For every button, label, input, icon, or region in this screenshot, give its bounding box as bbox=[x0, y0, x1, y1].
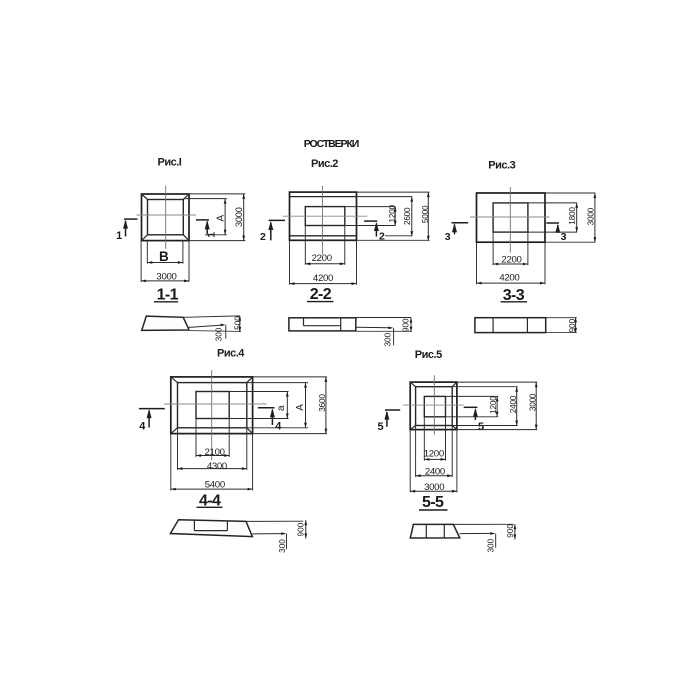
svg-text:1-1: 1-1 bbox=[157, 286, 179, 303]
svg-text:3000: 3000 bbox=[586, 207, 595, 225]
svg-text:3600: 3600 bbox=[318, 394, 327, 412]
svg-text:5-5: 5-5 bbox=[422, 494, 444, 511]
svg-text:4: 4 bbox=[275, 421, 282, 433]
svg-text:3000: 3000 bbox=[529, 393, 538, 411]
svg-text:РОСТВЕРКИ: РОСТВЕРКИ bbox=[304, 138, 359, 150]
svg-text:Рис.5: Рис.5 bbox=[415, 349, 442, 361]
svg-text:900: 900 bbox=[297, 522, 306, 536]
svg-text:900: 900 bbox=[506, 524, 515, 538]
svg-text:2400: 2400 bbox=[425, 466, 445, 477]
svg-text:3000: 3000 bbox=[424, 482, 444, 493]
svg-text:4200: 4200 bbox=[499, 272, 519, 283]
svg-text:4200: 4200 bbox=[313, 273, 333, 284]
svg-text:Рис.I: Рис.I bbox=[158, 156, 182, 168]
svg-text:В: В bbox=[159, 249, 169, 264]
svg-text:500: 500 bbox=[234, 316, 243, 330]
svg-text:3000: 3000 bbox=[156, 272, 176, 283]
svg-text:а: а bbox=[276, 405, 287, 411]
svg-text:300: 300 bbox=[215, 327, 224, 341]
svg-text:3: 3 bbox=[561, 231, 567, 243]
svg-text:А: А bbox=[216, 214, 227, 221]
svg-text:3: 3 bbox=[445, 231, 451, 243]
svg-text:Рис.3: Рис.3 bbox=[488, 159, 515, 171]
svg-text:1: 1 bbox=[116, 230, 122, 242]
svg-text:1800: 1800 bbox=[568, 207, 577, 225]
svg-text:5000: 5000 bbox=[421, 205, 430, 223]
svg-text:4300: 4300 bbox=[207, 461, 227, 472]
svg-text:300: 300 bbox=[278, 539, 287, 553]
svg-text:2200: 2200 bbox=[501, 255, 521, 266]
svg-text:2200: 2200 bbox=[312, 253, 332, 264]
svg-text:Рис.4: Рис.4 bbox=[217, 348, 245, 360]
svg-text:2-2: 2-2 bbox=[310, 286, 332, 303]
svg-text:300: 300 bbox=[487, 538, 496, 552]
svg-text:5400: 5400 bbox=[205, 479, 225, 490]
svg-text:2: 2 bbox=[260, 231, 266, 243]
svg-text:900: 900 bbox=[401, 318, 410, 332]
svg-text:300: 300 bbox=[384, 332, 393, 346]
svg-text:4: 4 bbox=[139, 421, 146, 433]
svg-text:1200: 1200 bbox=[489, 396, 498, 414]
svg-text:5: 5 bbox=[378, 421, 384, 433]
svg-text:2400: 2400 bbox=[509, 395, 518, 413]
svg-text:1200: 1200 bbox=[424, 449, 444, 460]
svg-text:А: А bbox=[295, 404, 306, 411]
svg-text:1200: 1200 bbox=[388, 204, 397, 222]
svg-text:5: 5 bbox=[478, 421, 484, 433]
svg-text:2100: 2100 bbox=[205, 447, 225, 458]
svg-text:900: 900 bbox=[568, 318, 577, 332]
svg-text:2600: 2600 bbox=[403, 207, 412, 225]
svg-text:3000: 3000 bbox=[234, 207, 244, 227]
svg-text:Рис.2: Рис.2 bbox=[311, 158, 338, 170]
